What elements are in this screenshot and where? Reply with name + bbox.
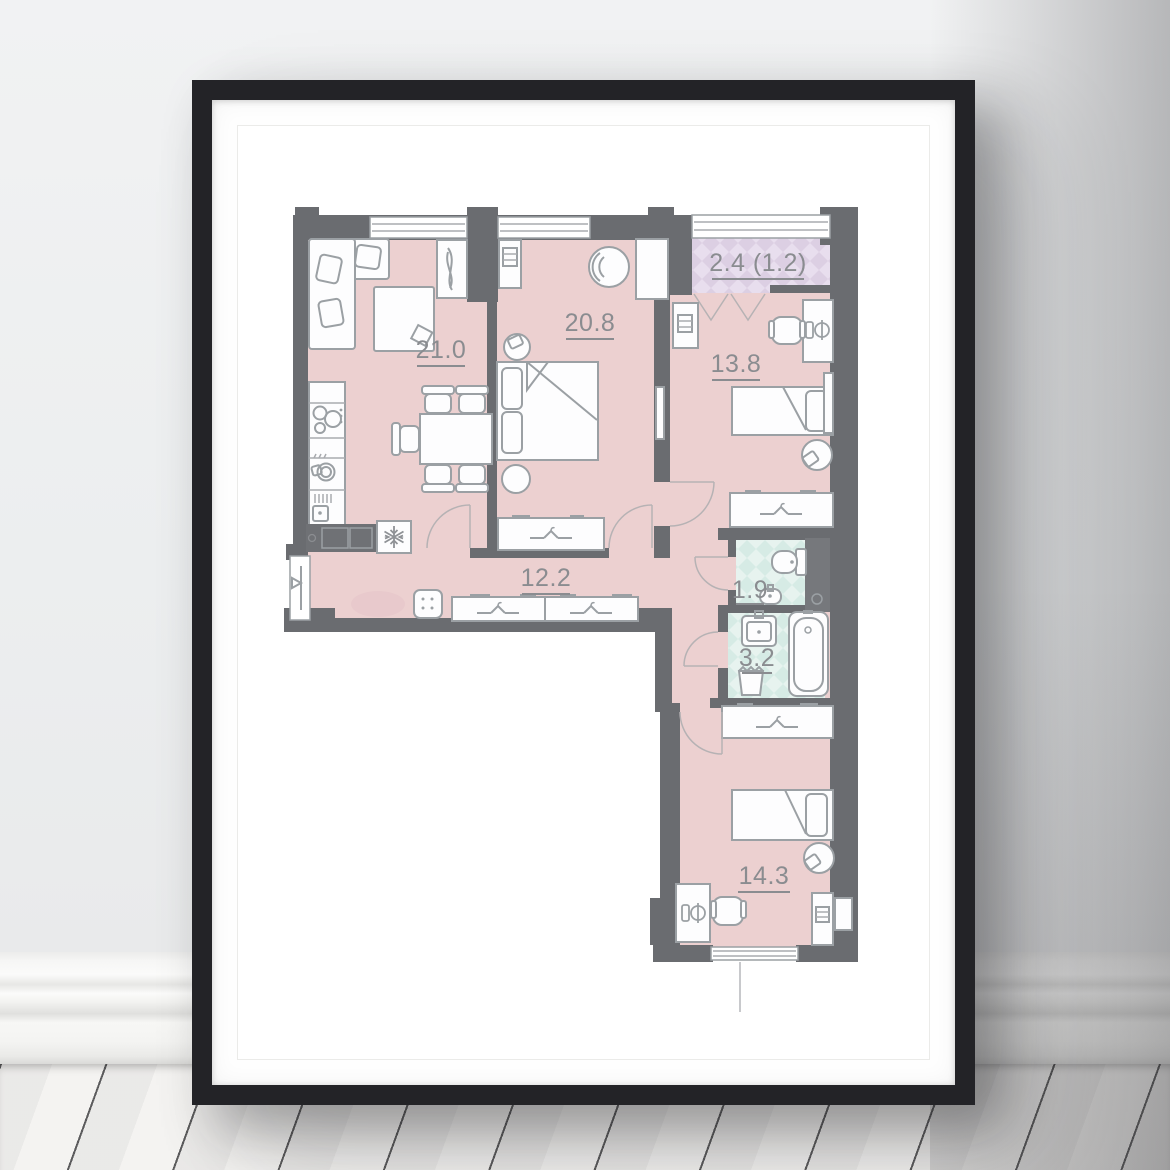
frame-mat	[212, 100, 955, 1085]
poster-paper	[237, 125, 930, 1060]
picture-frame	[192, 80, 975, 1105]
